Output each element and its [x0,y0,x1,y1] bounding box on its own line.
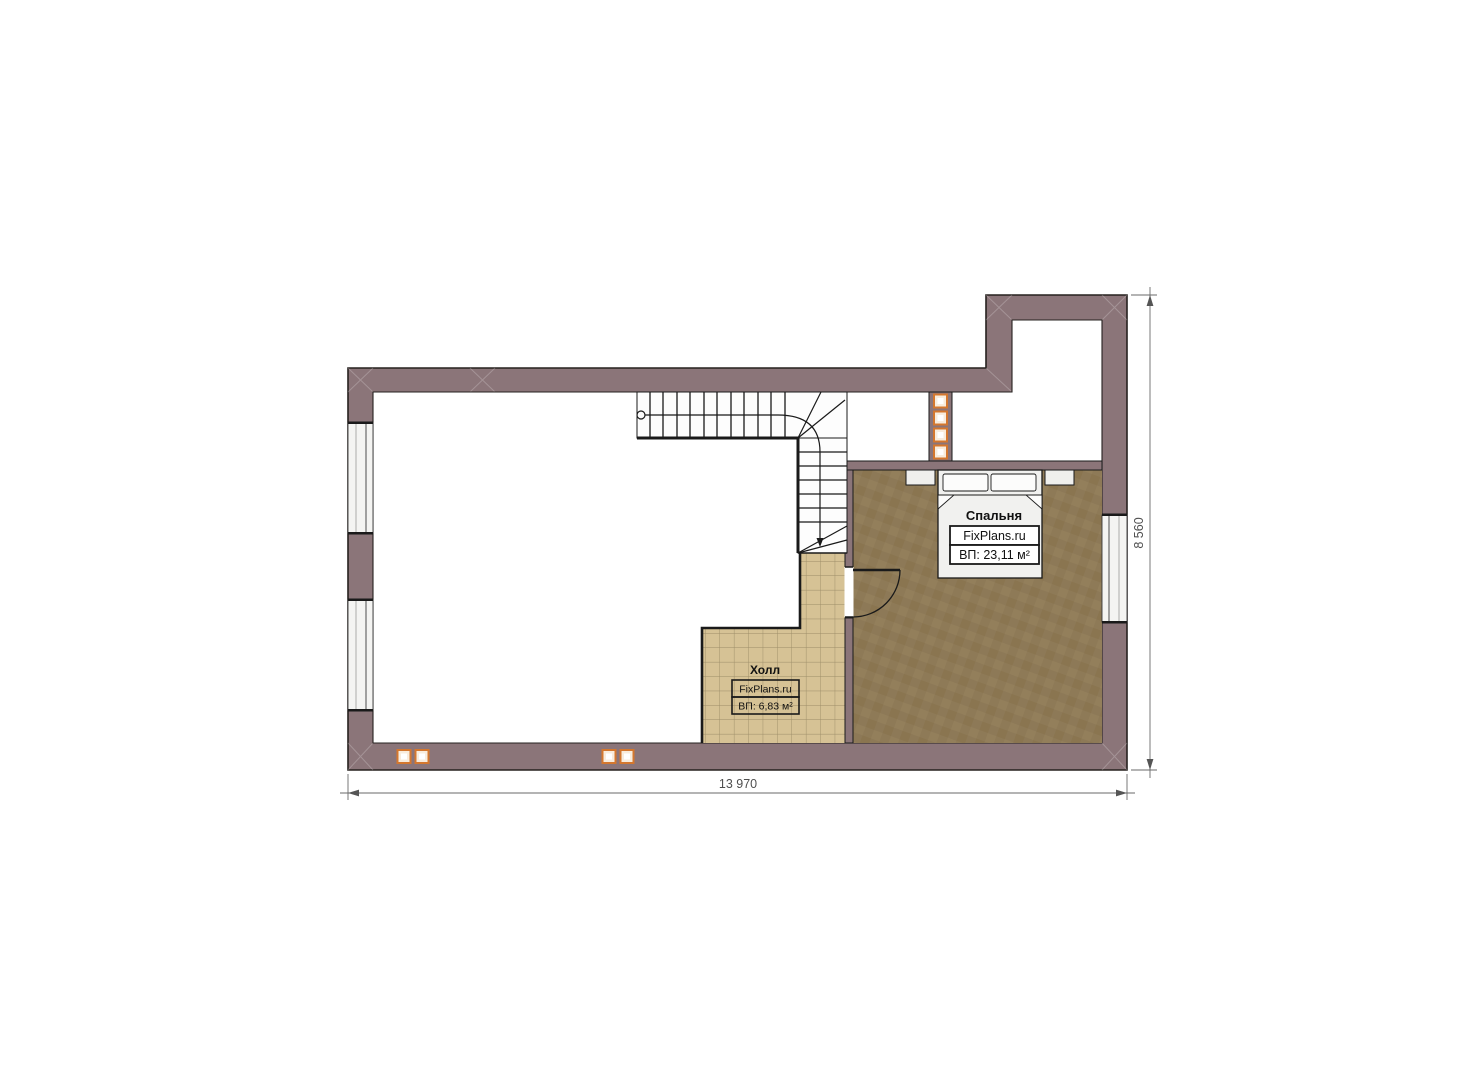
hall-area: ВП: 6,83 м² [738,701,793,713]
dimension-bottom-label: 13 970 [719,777,757,791]
nightstand-left [906,470,935,485]
hall-name: Холл [750,663,780,677]
window-left-top [348,422,373,535]
bedroom-name: Спальня [966,508,1022,523]
window-left-bottom [348,599,373,712]
pillow-left [943,474,988,491]
floor-plan-canvas: Спальня FixPlans.ru ВП: 23,11 м² Холл Fi… [0,0,1473,1080]
hall-site: FixPlans.ru [739,684,792,696]
bedroom-area: ВП: 23,11 м² [959,548,1030,562]
nightstand-right [1045,470,1074,485]
pillow-right [991,474,1036,491]
stair-start-marker [637,411,645,419]
window-right [1102,514,1127,624]
dimension-right-label: 8 560 [1132,517,1146,548]
bedroom-site: FixPlans.ru [963,529,1026,543]
floor-plan-svg: Спальня FixPlans.ru ВП: 23,11 м² Холл Fi… [0,0,1473,1080]
